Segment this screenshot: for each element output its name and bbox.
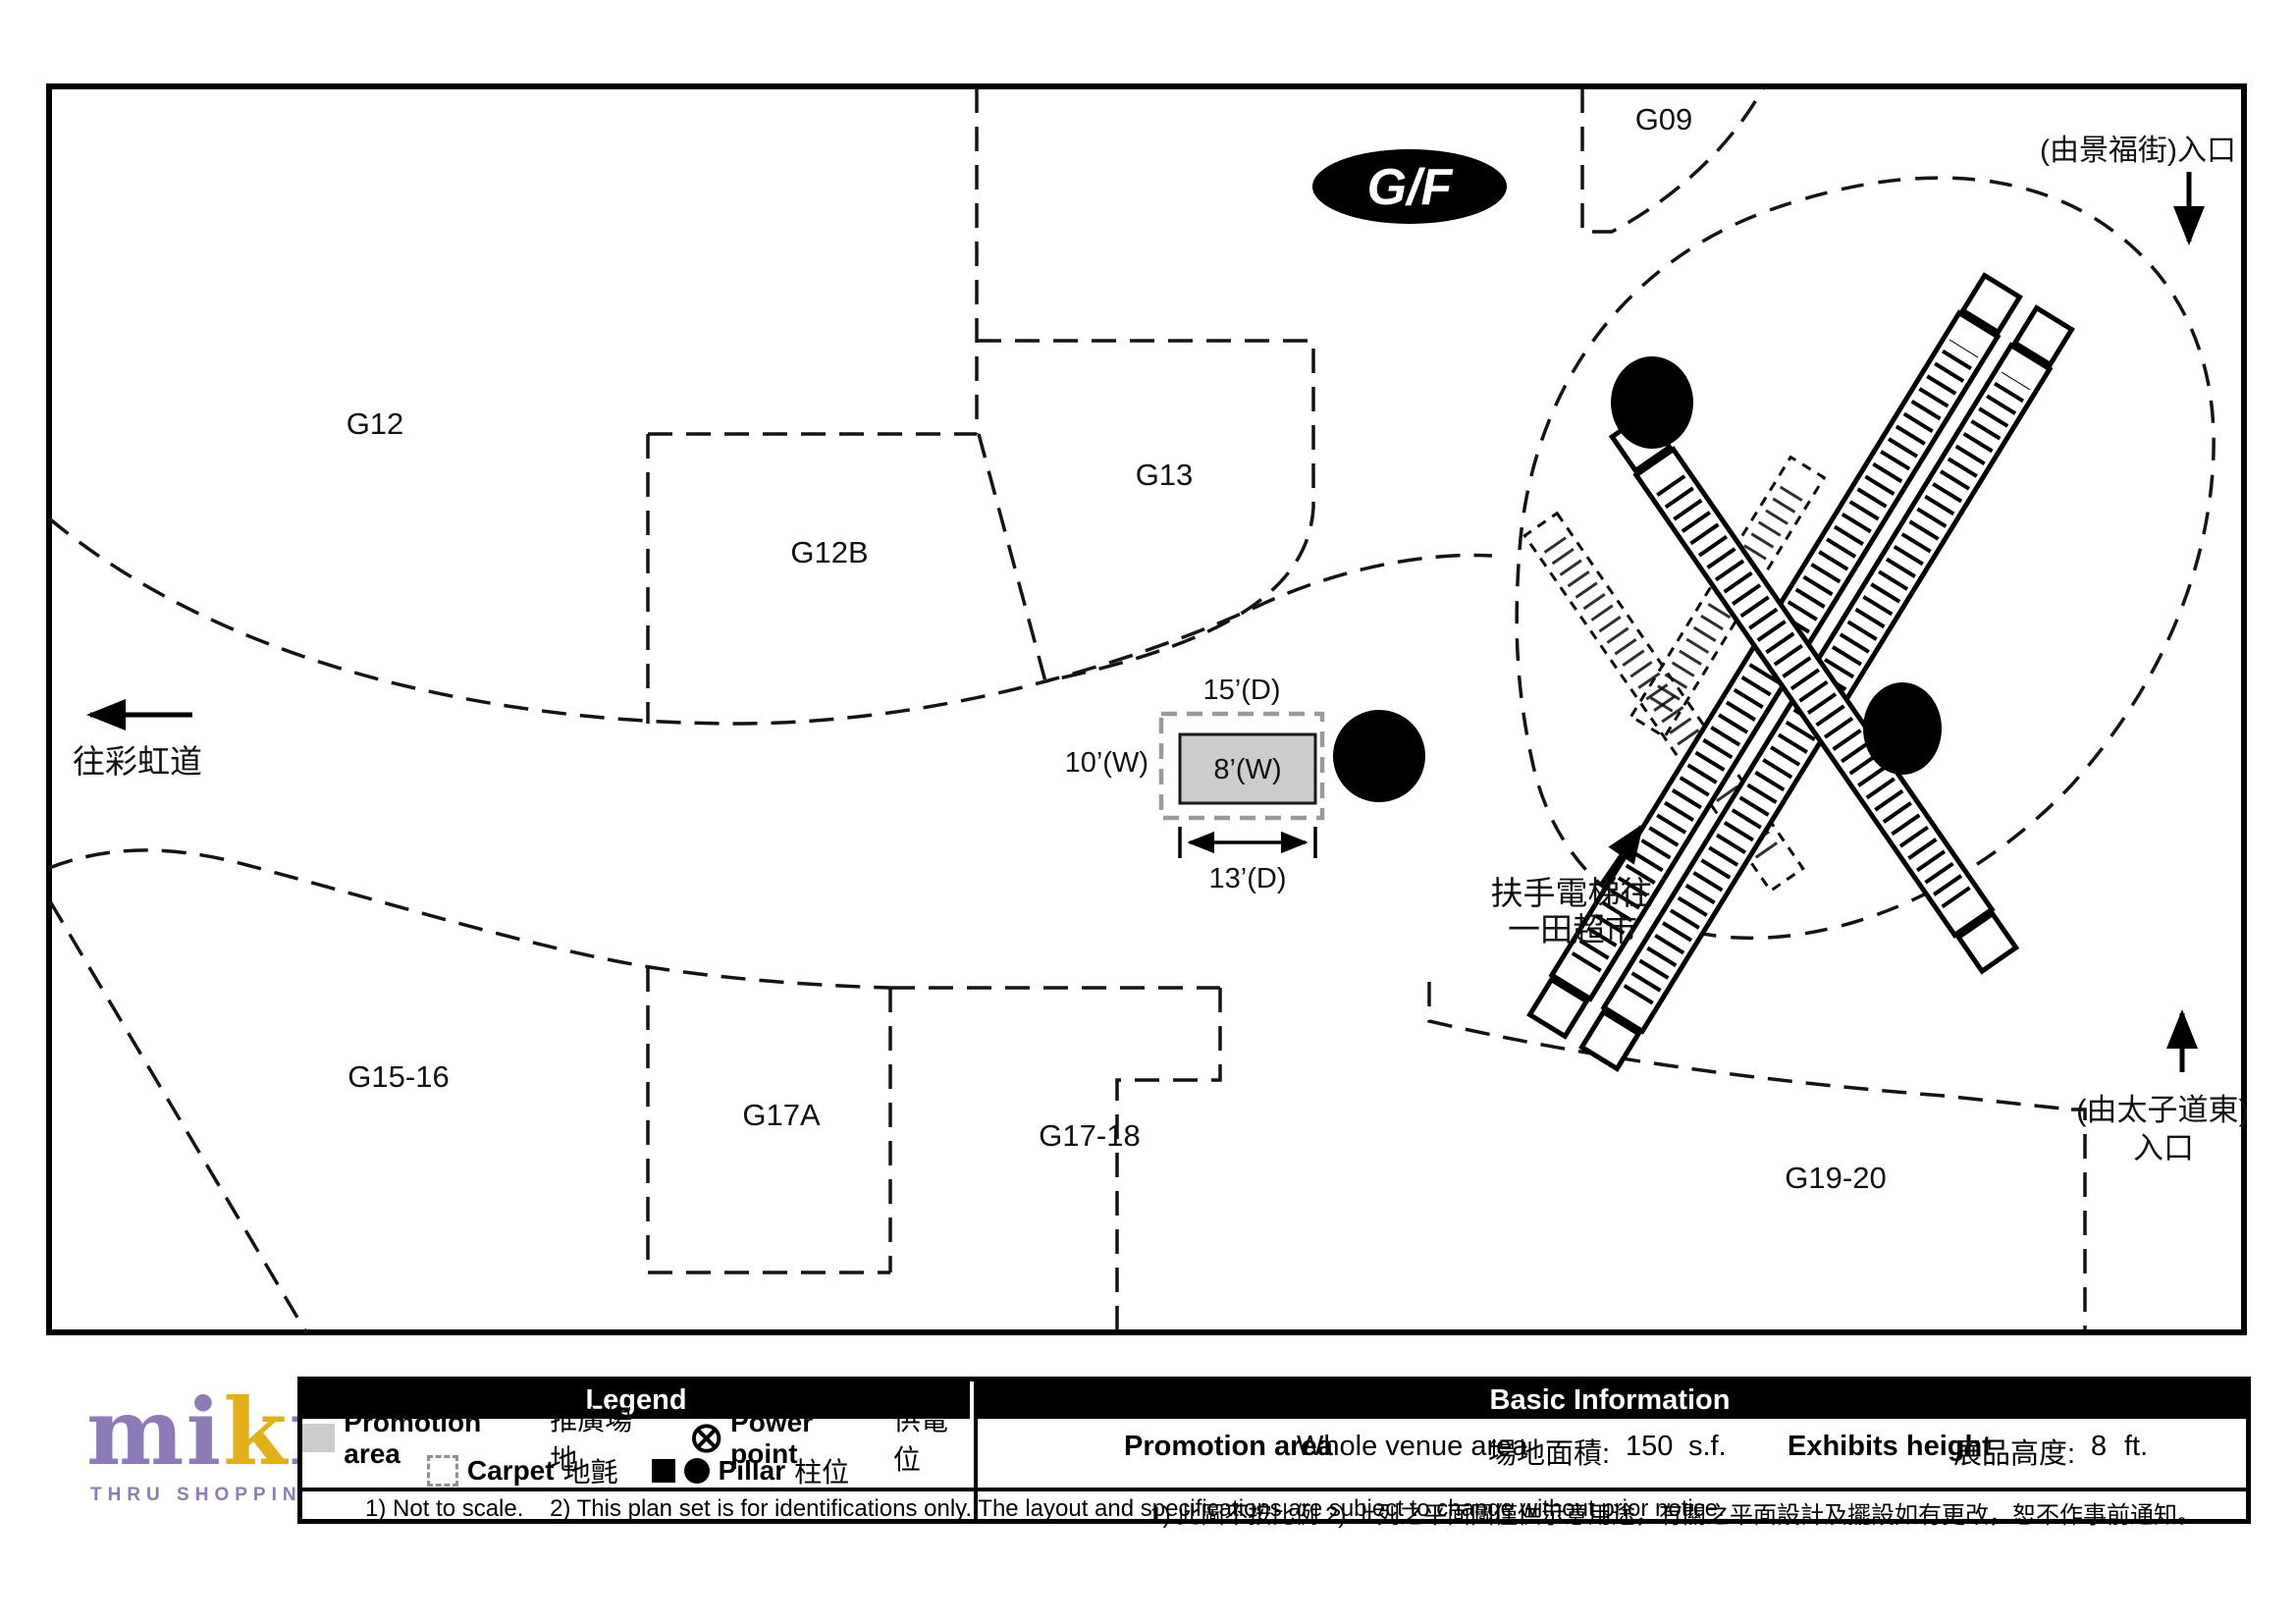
to-choi-hung-label: 往彩虹道 xyxy=(73,743,202,780)
shop-label-g17a: G17A xyxy=(742,1098,821,1132)
shop-label-g13: G13 xyxy=(1136,458,1194,492)
entrance-prince-edward-line1: (由太子道東) xyxy=(2076,1093,2249,1127)
shop-label-g12: G12 xyxy=(347,406,404,441)
logo-letter: m xyxy=(86,1379,186,1487)
pillar-circle-promo xyxy=(1333,710,1425,802)
floor-plan-page: G/F G12 G12B G13 G09 G15-16 G17A G17-18 … xyxy=(0,0,2296,1624)
basic-info-height-value: 8 xyxy=(2091,1431,2107,1463)
info-table: Legend Basic Information Promotion area … xyxy=(297,1377,2251,1524)
basic-info-row: Promotion area Whole venue area 場地面積: 15… xyxy=(302,1419,2246,1488)
note-chinese: 1) 此圖不按比例 2) 上列之平面圖僅供示意用途，有關之平面設計及擺設如有更改… xyxy=(1149,1495,2201,1530)
pillar-circle-1 xyxy=(1611,356,1693,449)
basic-info-area-value: 150 xyxy=(1626,1431,1673,1463)
logo-letter: k xyxy=(223,1379,289,1487)
promo-dim-inner: 8’(W) xyxy=(1213,754,1281,785)
basic-info-title: Basic Information xyxy=(974,1381,2246,1419)
shop-label-g15-16: G15-16 xyxy=(347,1059,449,1094)
promo-dim-bottom: 13’(D) xyxy=(1209,863,1287,894)
basic-info-height-unit: ft. xyxy=(2124,1431,2148,1463)
shop-label-g17-18: G17-18 xyxy=(1039,1118,1140,1153)
shop-label-g12b: G12B xyxy=(790,535,868,569)
shop-label-g09: G09 xyxy=(1635,102,1693,136)
notes-row: 1) Not to scale. 2) This plan set is for… xyxy=(302,1488,2246,1519)
promo-dim-left: 10’(W) xyxy=(1065,747,1148,779)
basic-info-height-label-cn: 展品高度: xyxy=(1953,1431,2075,1472)
basic-info-area-unit: s.f. xyxy=(1688,1431,1727,1463)
promo-dim-top: 15’(D) xyxy=(1203,675,1281,706)
escalator-note-line1: 扶手電梯往 xyxy=(1491,875,1653,911)
floor-badge-label: G/F xyxy=(1367,159,1454,216)
entrance-king-fuk-label: (由景福街)入口 xyxy=(2040,135,2236,167)
basic-info-area-label: 場地面積: xyxy=(1488,1431,1610,1472)
pillar-circle-2 xyxy=(1863,682,1942,775)
escalator-note-line2: 一田超市 xyxy=(1508,911,1637,947)
logo-letter: i xyxy=(186,1379,223,1487)
shop-label-g19-20: G19-20 xyxy=(1785,1161,1886,1195)
entrance-prince-edward-line2: 入口 xyxy=(2133,1131,2194,1165)
logo-tagline: THRU SHOPPING xyxy=(90,1485,322,1506)
